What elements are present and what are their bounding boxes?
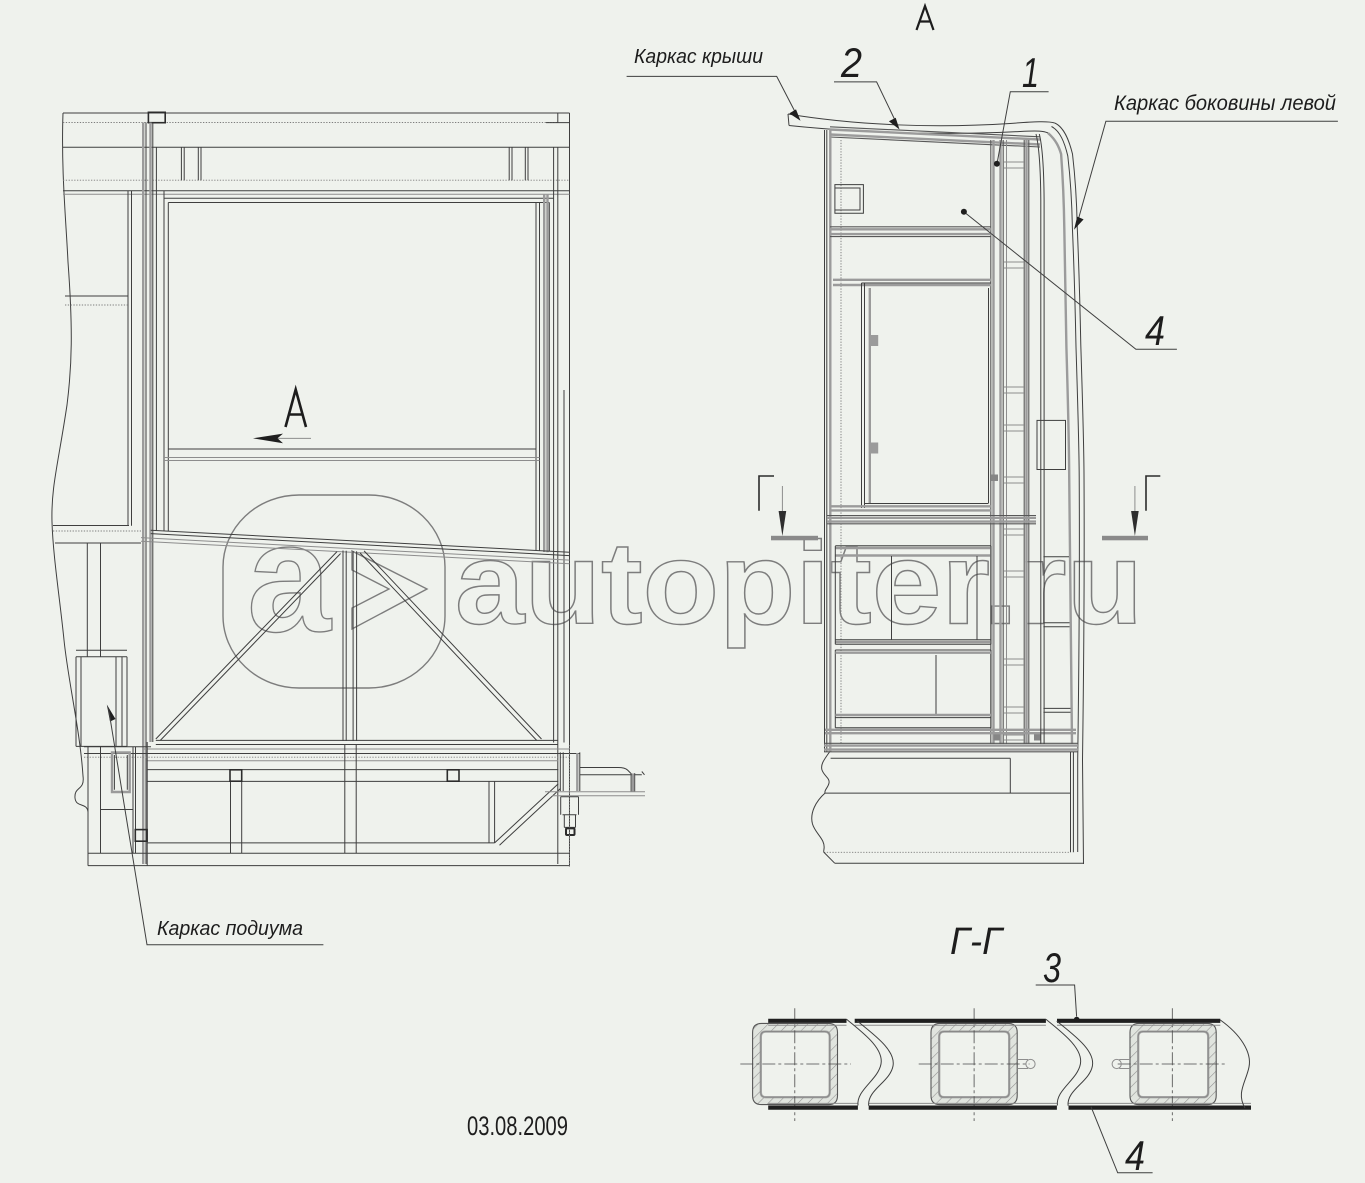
svg-text:1: 1 — [1022, 49, 1039, 96]
svg-text:4: 4 — [1125, 1132, 1145, 1179]
svg-text:Г-Г: Г-Г — [950, 921, 1005, 963]
svg-text:4: 4 — [1145, 307, 1165, 354]
svg-text:3: 3 — [1043, 944, 1061, 991]
svg-text:Каркас боковины левой: Каркас боковины левой — [1114, 92, 1336, 115]
svg-text:Каркас подиума: Каркас подиума — [157, 918, 303, 940]
svg-text:2: 2 — [840, 39, 862, 86]
svg-text:Каркас крыши: Каркас крыши — [634, 46, 763, 68]
svg-text:a: a — [247, 491, 332, 665]
svg-text:03.08.2009: 03.08.2009 — [467, 1111, 568, 1141]
